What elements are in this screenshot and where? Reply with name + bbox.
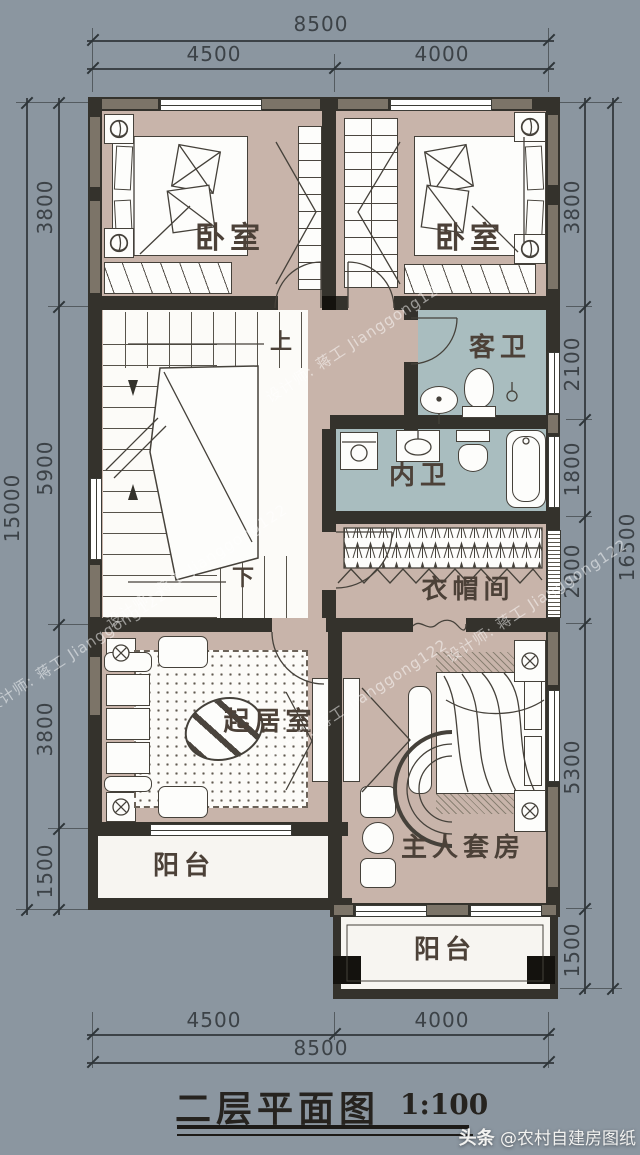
wall-bath-divider: [330, 415, 546, 429]
dim-right-seg: 2100: [560, 319, 584, 409]
room-label-balcony-left: 阳台: [124, 852, 244, 881]
wall-bedroom-divider: [322, 111, 336, 296]
sink: [420, 386, 458, 414]
sofa-cushion: [106, 742, 150, 774]
dim-left-seg: 5900: [33, 423, 57, 513]
dim-bottom-seg: 4000: [392, 1008, 492, 1032]
dim-line: [584, 98, 586, 994]
wall-bedrooms-south: [88, 296, 560, 310]
window: [160, 99, 262, 111]
nightstand: [514, 640, 546, 682]
dim-top-overall: 8500: [271, 12, 371, 36]
dim-left-seg: 3800: [33, 684, 57, 774]
room-label-bedroom-left: 卧室: [170, 222, 290, 255]
wall-inner-bath-west: [322, 429, 336, 511]
room-label-guest-bath: 客卫: [440, 334, 560, 363]
wardrobe: [344, 118, 398, 288]
wall-cloak-west: [322, 524, 336, 532]
door-opening: [278, 296, 322, 310]
pillow: [114, 146, 133, 191]
dressing-table: [360, 786, 396, 818]
floor-plan-page: { "drawing": { "title": "二层平面图", "scale"…: [0, 0, 640, 1155]
window: [548, 436, 560, 508]
speaker-box: [106, 792, 136, 822]
dim-line: [87, 68, 554, 70]
dressing-table: [360, 858, 396, 888]
wall-living-balcony: [88, 822, 348, 836]
radiator: [104, 262, 232, 294]
door-opening: [413, 618, 466, 632]
sofa-cushion: [106, 708, 150, 740]
room-label-inner-bath: 内卫: [360, 462, 480, 491]
column: [527, 956, 555, 984]
dim-line: [58, 98, 60, 915]
window: [90, 478, 102, 560]
wall-left: [88, 97, 102, 836]
toilet: [464, 368, 494, 408]
wall-master-balcony: [330, 903, 560, 917]
drawing-scale: 1:100: [400, 1088, 490, 1121]
dim-right-seg: 1800: [560, 424, 584, 514]
dim-right-seg: 1500: [560, 905, 584, 995]
sofa-armrest: [104, 776, 152, 792]
window: [355, 905, 427, 917]
dim-top-seg: 4000: [392, 42, 492, 66]
footer-watermark: 头条 @农村自建房图纸: [420, 1124, 636, 1150]
wall-right: [546, 97, 560, 917]
footer-brand: 头条: [459, 1128, 495, 1149]
footer-handle: @农村自建房图纸: [500, 1129, 636, 1149]
room-label-cloakroom: 衣帽间: [408, 576, 528, 605]
bench: [408, 686, 432, 794]
wardrobe: [298, 126, 322, 290]
window: [150, 824, 292, 836]
dim-right-seg: 5300: [560, 722, 584, 812]
armchair: [158, 786, 208, 818]
toilet-tank: [456, 430, 490, 442]
speaker-box: [104, 228, 134, 258]
balcony-left-rail: [88, 898, 352, 910]
room-label-balcony-right: 阳台: [385, 936, 505, 965]
pillow: [525, 146, 544, 191]
stair-up-label: 上: [266, 330, 296, 354]
toilet-tank: [462, 406, 496, 418]
column: [333, 956, 361, 984]
dim-bottom-overall: 8500: [271, 1036, 371, 1060]
sofa-cushion: [106, 674, 150, 706]
pillow: [524, 680, 542, 730]
stair-down-label: 下: [228, 566, 258, 590]
dim-bottom-seg: 4500: [164, 1008, 264, 1032]
balcony-right-rail: [333, 989, 558, 999]
sink-counter: [396, 430, 440, 462]
window: [548, 690, 560, 782]
stool: [362, 822, 394, 854]
pillow: [524, 736, 542, 786]
wall-top: [88, 97, 560, 111]
wall-cloak-north: [322, 511, 546, 524]
speaker-box: [104, 114, 134, 144]
window: [470, 905, 542, 917]
dim-line: [26, 98, 28, 915]
dim-left-seg: 3800: [33, 162, 57, 252]
dim-line: [87, 1062, 554, 1064]
room-label-bedroom-right: 卧室: [410, 222, 530, 255]
armchair: [158, 636, 208, 668]
sofa-armrest: [104, 652, 152, 672]
window: [390, 99, 492, 111]
dim-left-overall: 15000: [0, 463, 24, 553]
nightstand: [514, 790, 546, 832]
speaker-box: [514, 112, 546, 142]
wall-living-master: [328, 632, 342, 910]
dim-left-seg: 1500: [33, 826, 57, 916]
room-label-master: 主人套房: [393, 834, 533, 863]
dim-top-seg: 4500: [164, 42, 264, 66]
bathtub-inner: [512, 436, 540, 502]
dim-right-seg: 3800: [560, 162, 584, 252]
door-opening: [272, 618, 326, 632]
